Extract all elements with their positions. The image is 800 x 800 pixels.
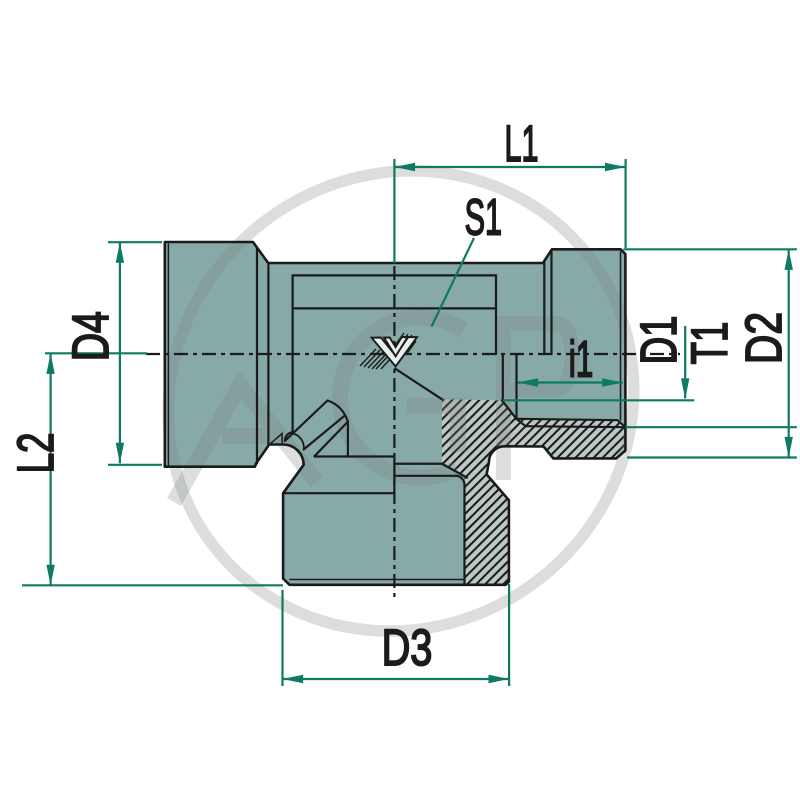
svg-text:L2: L2 (8, 433, 64, 474)
svg-text:D4: D4 (62, 311, 119, 361)
svg-text:D2: D2 (735, 312, 792, 364)
svg-text:L1: L1 (504, 115, 538, 172)
svg-text:T1: T1 (682, 322, 738, 365)
svg-text:D3: D3 (382, 619, 433, 676)
svg-text:D1: D1 (630, 316, 688, 365)
svg-text:i1: i1 (569, 331, 594, 387)
svg-text:S1: S1 (465, 188, 502, 245)
